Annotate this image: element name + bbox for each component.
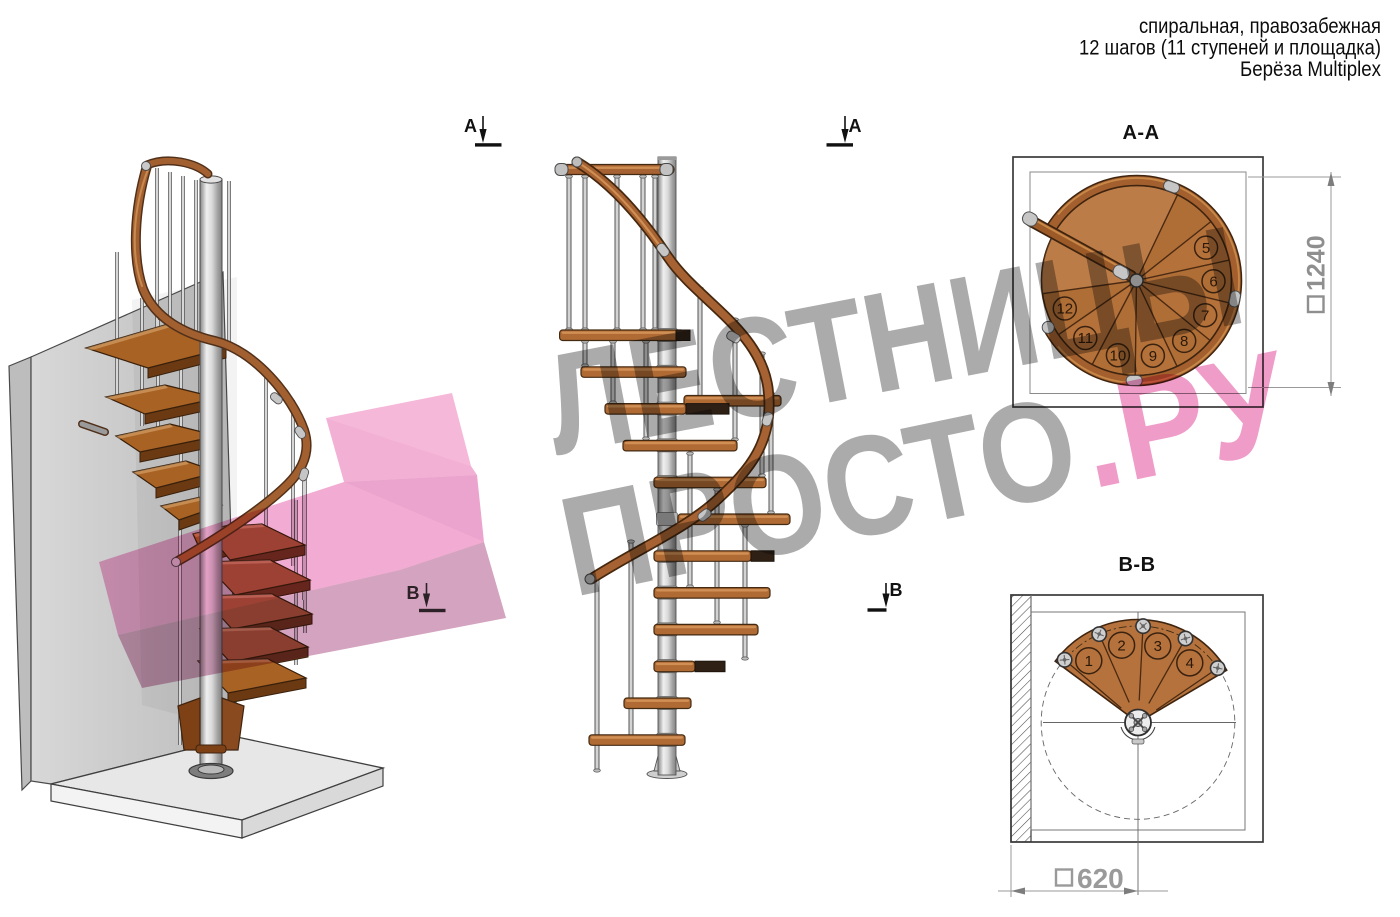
svg-text:620: 620 <box>1077 863 1124 894</box>
svg-text:1: 1 <box>1085 653 1093 670</box>
svg-text:В: В <box>890 580 903 600</box>
svg-text:12 шагов (11 ступеней и площад: 12 шагов (11 ступеней и площадка) <box>1079 37 1381 60</box>
svg-text:Берёза Multiplex: Берёза Multiplex <box>1240 58 1381 81</box>
svg-text:4: 4 <box>1186 655 1194 672</box>
svg-text:2: 2 <box>1117 637 1125 654</box>
svg-text:1240: 1240 <box>1303 235 1331 291</box>
svg-text:3: 3 <box>1154 638 1162 655</box>
svg-text:А: А <box>849 116 862 136</box>
svg-text:А: А <box>464 116 477 136</box>
svg-text:спиральная, правозабежная: спиральная, правозабежная <box>1139 15 1381 38</box>
svg-text:А-А: А-А <box>1122 122 1159 144</box>
svg-text:В-В: В-В <box>1118 554 1155 576</box>
